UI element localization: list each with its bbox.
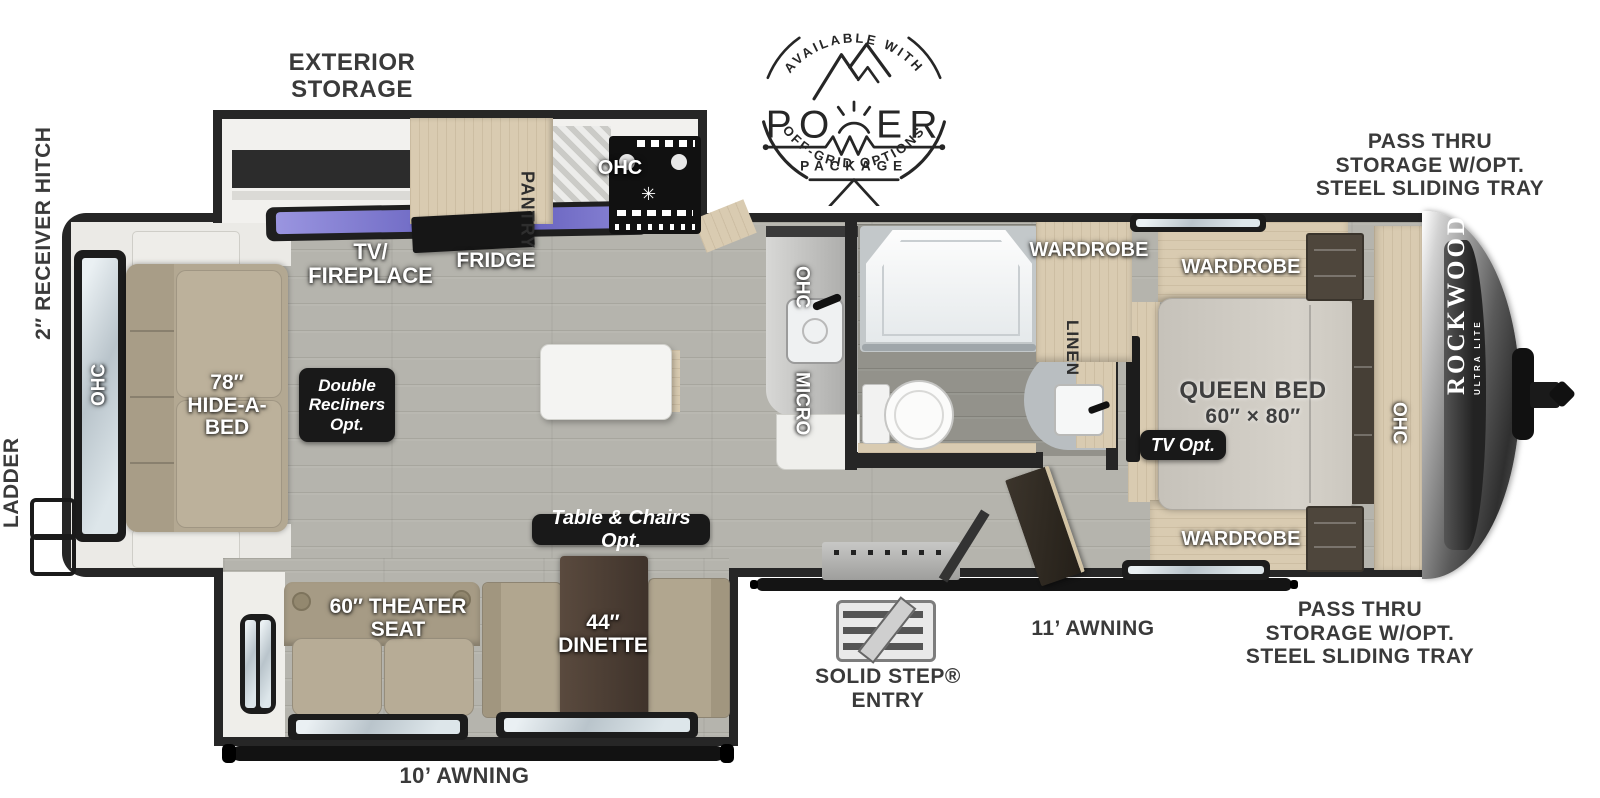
bath-wall-bottom [845,452,1043,468]
exterior-storage-line1: EXTERIOR [262,50,442,77]
badge-package: PACKAGE [800,158,908,173]
exterior-storage-line2: STORAGE [262,77,442,104]
double-recliners-line1: Double [309,376,386,395]
floorplan-canvas: AVAILABLE WITH OFF-GRID OPTIONS PO ER PA… [0,0,1600,798]
theater-seat-line2: SEAT [305,619,491,642]
bedroom-window-bottom [1122,560,1270,580]
solid-step-line2: ENTRY [798,689,978,713]
sun-icon [838,102,870,132]
table-chairs-badge: Table & Chairs Opt. [532,514,710,545]
pass-thru-front-line3: STEEL SLIDING TRAY [1305,177,1555,201]
exterior-storage-label: EXTERIOR STORAGE [262,50,442,104]
hide-a-bed-label: 78″ HIDE-A- BED [167,372,287,440]
slide-window-right [496,712,698,738]
hide-a-bed-line3: BED [167,417,287,440]
shower-glass [862,344,1036,351]
queen-bed-line2: 60″ × 80″ [1162,405,1344,429]
dinette-label: 44″ DINETTE [528,612,678,657]
burner-icon: ✳ [641,184,656,205]
slide-window-left [288,714,468,740]
solid-step-icon [836,600,936,662]
double-recliners-line2: Recliners [309,395,386,414]
wardrobe-bottom-label: WARDROBE [1160,529,1322,551]
awning-10-label: 10’ AWNING [372,764,557,789]
pass-thru-rear-line1: PASS THRU [1240,598,1480,622]
theater-seat-line1: 60″ THEATER [305,596,491,619]
slide-end-window [240,614,276,714]
hide-a-bed-line2: HIDE-A- [167,395,287,418]
bath-wall-left [845,222,857,470]
queen-bed-line1: QUEEN BED [1162,378,1344,405]
kitchen-island [540,344,672,420]
pass-thru-rear-label: PASS THRU STORAGE W/OPT. STEEL SLIDING T… [1240,598,1480,669]
badge-power-left: PO [766,104,837,147]
pole-icon [810,180,898,206]
bedroom-window-top [1130,214,1266,232]
toilet [862,380,954,446]
hide-a-bed-line1: 78″ [167,372,287,395]
tv-fireplace-label: TV/ FIREPLACE [298,240,443,288]
double-recliners-line3: Opt. [309,415,386,434]
double-recliners-badge: Double Recliners Opt. [299,368,395,442]
ladder-icon [28,496,72,572]
dinette-line1: 44″ [528,612,678,635]
pass-thru-front-label: PASS THRU STORAGE W/OPT. STEEL SLIDING T… [1305,130,1555,201]
ohc-front-band [1374,226,1422,570]
ohc-stove-label: OHC [588,158,652,180]
badge-available-with: AVAILABLE WITH [781,30,927,75]
wardrobe-top-label: WARDROBE [1160,257,1322,279]
pass-thru-rear-line3: STEEL SLIDING TRAY [1240,645,1480,669]
stove-range: ✳ [609,136,701,234]
awning-11-label: 11’ AWNING [998,617,1188,641]
vanity-sink [1054,384,1104,436]
wardrobe-bath-label: WARDROBE [1015,240,1163,262]
pass-thru-front-line2: STORAGE W/OPT. [1305,154,1555,178]
solid-step-line1: SOLID STEP® [798,665,978,689]
power-package-badge: AVAILABLE WITH OFF-GRID OPTIONS PO ER PA… [748,0,960,206]
tv-fireplace-line2: FIREPLACE [298,264,443,288]
shower [860,226,1038,352]
awning-10-rail [232,746,724,761]
queen-bed-label: QUEEN BED 60″ × 80″ [1162,378,1344,428]
badge-power-right: ER [876,104,945,147]
svg-text:AVAILABLE WITH: AVAILABLE WITH [781,30,927,75]
drawer-stack [1352,300,1374,504]
solid-step-label: SOLID STEP® ENTRY [798,665,978,712]
pass-thru-front-line1: PASS THRU [1305,130,1555,154]
tv-fireplace-line1: TV/ [298,240,443,264]
tv-opt-badge: TV Opt. [1140,430,1226,460]
theater-seat-label: 60″ THEATER SEAT [305,596,491,641]
pass-thru-rear-line2: STORAGE W/OPT. [1240,622,1480,646]
fridge-label: FRIDGE [444,250,548,273]
dinette-line2: DINETTE [528,635,678,658]
